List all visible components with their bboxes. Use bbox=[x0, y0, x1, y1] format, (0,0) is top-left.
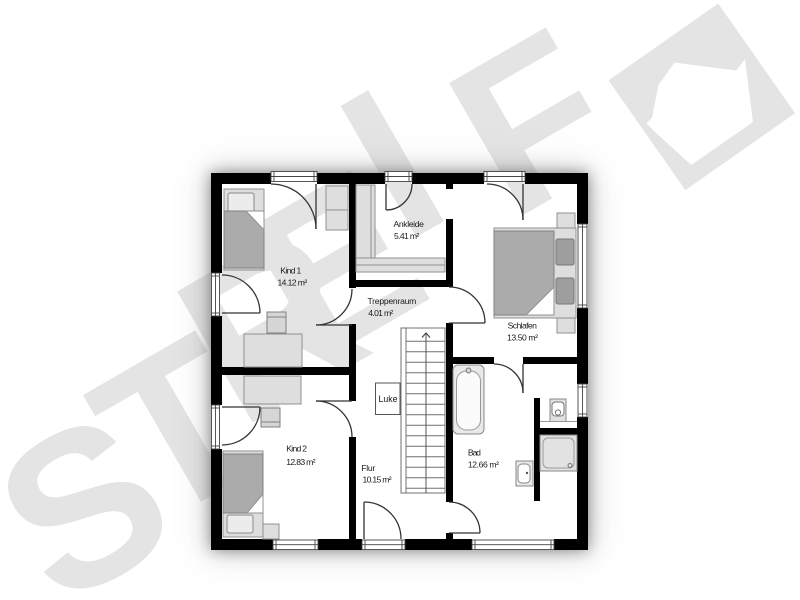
svg-text:Kind 1: Kind 1 bbox=[280, 265, 301, 275]
svg-text:12.83 m²: 12.83 m² bbox=[286, 457, 315, 467]
svg-text:Ankleide: Ankleide bbox=[394, 219, 425, 229]
svg-text:Treppenraum: Treppenraum bbox=[368, 296, 417, 306]
svg-text:Schlafen: Schlafen bbox=[508, 320, 538, 330]
svg-text:5.41 m²: 5.41 m² bbox=[394, 231, 419, 241]
svg-text:Kind 2: Kind 2 bbox=[286, 444, 307, 454]
svg-text:14.12 m²: 14.12 m² bbox=[278, 278, 308, 288]
svg-text:13.50 m²: 13.50 m² bbox=[507, 333, 538, 343]
svg-text:10.15 m²: 10.15 m² bbox=[363, 475, 392, 485]
svg-text:4.01 m²: 4.01 m² bbox=[368, 308, 393, 318]
svg-text:12.66 m²: 12.66 m² bbox=[468, 459, 499, 469]
svg-text:Bad: Bad bbox=[468, 448, 481, 458]
svg-text:Flur: Flur bbox=[361, 463, 375, 473]
svg-text:Luke: Luke bbox=[379, 394, 398, 404]
